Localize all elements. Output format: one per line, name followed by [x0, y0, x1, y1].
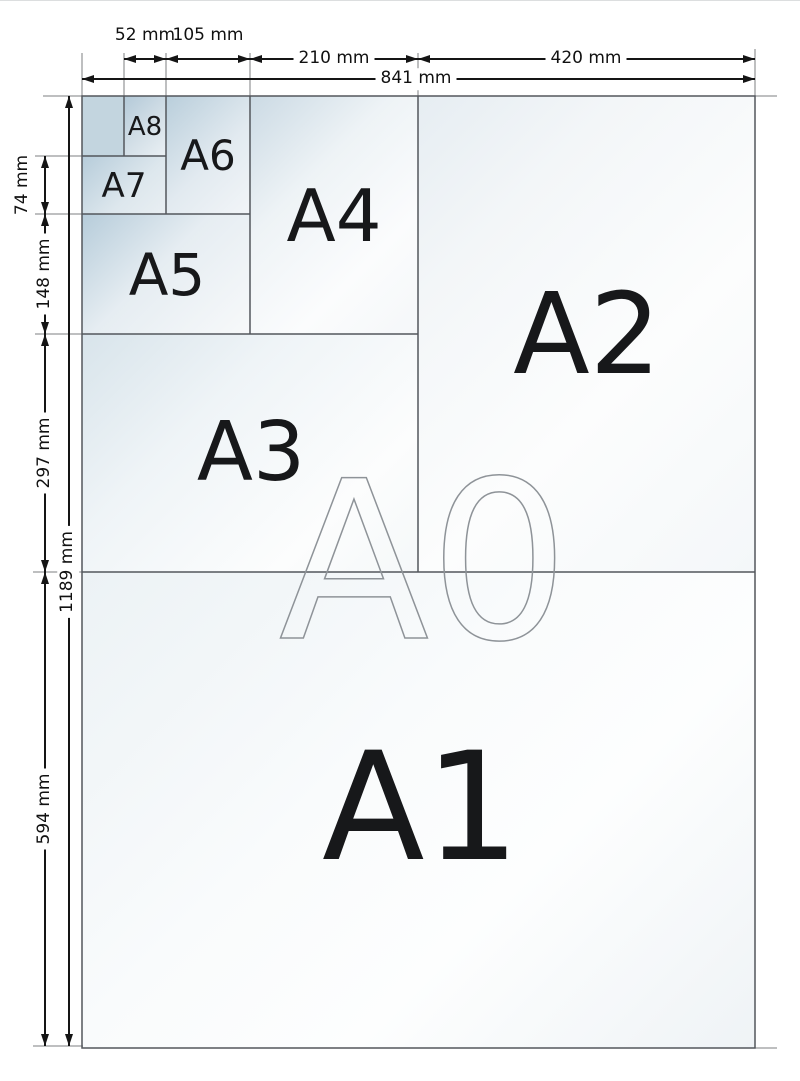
dim-210mm-label: 210 mm	[294, 48, 375, 70]
sheet-a6-label: A6	[180, 135, 235, 177]
sheet-a0-label: A0	[279, 434, 569, 690]
dim-1189mm-label: 1189 mm	[57, 526, 79, 618]
dim-52mm-label: 52 mm	[115, 26, 175, 46]
dim-74mm-label: 74 mm	[13, 155, 33, 215]
sheet-a8-label: A8	[128, 114, 162, 140]
dimension-lines-layer: A0	[0, 1, 800, 1081]
paper-sizes-diagram: A0	[0, 0, 800, 1081]
dim-148mm-label: 148 mm	[34, 234, 56, 315]
dim-594mm-label: 594 mm	[34, 769, 56, 850]
sheet-a3-label: A3	[197, 412, 305, 494]
sheet-a2-label: A2	[513, 279, 661, 391]
dim-420mm-label: 420 mm	[546, 48, 627, 70]
sheet-a1-label: A1	[322, 733, 520, 883]
dim-841mm-label: 841 mm	[376, 68, 457, 90]
dim-297mm-label: 297 mm	[34, 413, 56, 494]
dim-105mm-label: 105 mm	[173, 26, 244, 46]
sheet-a4-label: A4	[286, 180, 381, 252]
sheet-a7-label: A7	[102, 169, 147, 203]
sheet-a5-label: A5	[129, 246, 206, 304]
